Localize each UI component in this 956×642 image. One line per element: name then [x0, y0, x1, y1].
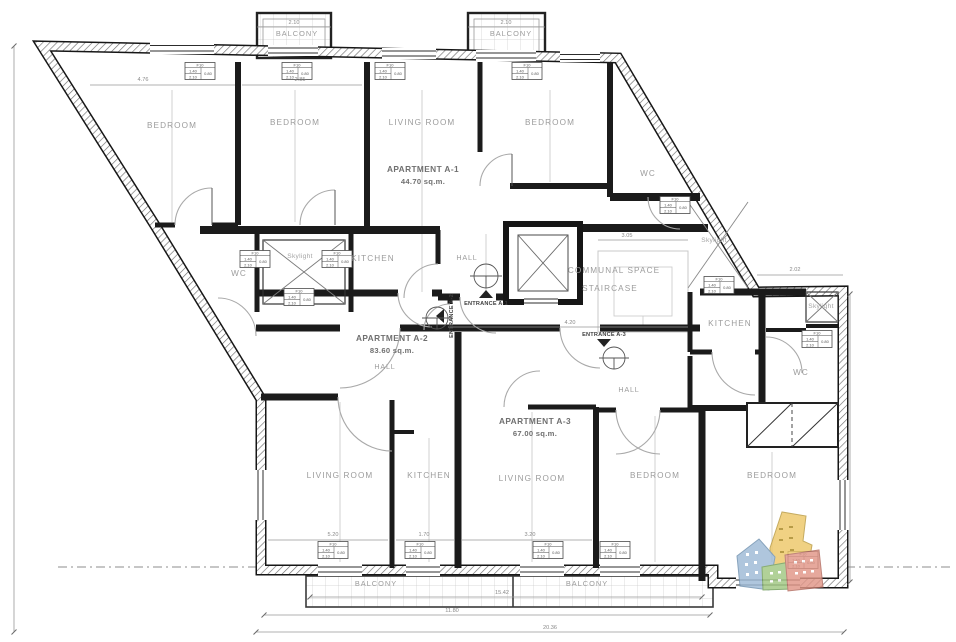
window-tag: F101.402.100.80 [704, 277, 734, 294]
window-tag: F101.402.100.80 [185, 63, 215, 80]
tag-cell: 0.80 [259, 259, 268, 264]
tag-cell: 2.10 [189, 75, 198, 80]
tag-header: F10 [296, 289, 304, 294]
tag-cell: 1.40 [244, 257, 253, 262]
tag-cell: 2.10 [288, 301, 297, 306]
tag-cell: 2.10 [604, 554, 613, 559]
dimension-label: 2.85 [295, 77, 306, 83]
window-tag: F101.402.100.80 [802, 331, 832, 348]
window-tag: F101.402.100.80 [660, 197, 690, 214]
window-tag: F101.402.100.80 [512, 63, 542, 80]
tag-cell: 0.80 [337, 550, 346, 555]
apartment-a-3-label: APARTMENT A-3 [499, 416, 571, 426]
dimension-label: 11.80 [445, 608, 459, 614]
bedroom-label: BEDROOM [747, 471, 797, 480]
tag-cell: 1.40 [516, 69, 525, 74]
dimension-label: 2.02 [790, 267, 801, 273]
tag-cell: 1.40 [806, 337, 815, 342]
floor-plan-page: F101.402.100.80F101.402.100.80F101.402.1… [0, 0, 956, 642]
bedroom-label: BEDROOM [630, 471, 680, 480]
tag-cell: 1.40 [664, 203, 673, 208]
dimension-label: 2.10 [501, 20, 512, 26]
dimension-label: 3.05 [622, 233, 633, 239]
hall-label: HALL [456, 253, 477, 262]
entrance-a-3-label: ENTRANCE A-3 [582, 332, 626, 338]
dimension-label: 20.36 [543, 625, 557, 631]
tag-cell: 2.10 [806, 343, 815, 348]
tag-cell: 0.80 [341, 259, 350, 264]
communal-space-label: COMMUNAL SPACE [568, 266, 660, 275]
entrance-a-1-label: ENTRANCE A-1 [464, 301, 508, 307]
wc-label: WC [793, 368, 809, 377]
window-tag: F101.402.100.80 [533, 542, 563, 559]
tag-header: F10 [524, 63, 532, 68]
window-tag: F101.402.100.80 [322, 251, 352, 268]
dimension-label: 3.20 [525, 532, 536, 538]
tag-cell: 0.80 [424, 550, 433, 555]
skylight-label: Skylight [287, 253, 313, 260]
wardrobe [747, 403, 838, 447]
dimension-label: 5.20 [328, 532, 339, 538]
hall-label: HALL [374, 362, 395, 371]
tag-cell: 0.80 [531, 71, 540, 76]
kitchen-label: KITCHEN [351, 254, 395, 263]
tag-cell: 2.10 [409, 554, 418, 559]
apartment-a-1-label: APARTMENT A-1 [387, 164, 459, 174]
tag-cell: 0.80 [821, 339, 830, 344]
tag-cell: 0.80 [301, 71, 310, 76]
balcony-label: BALCONY [566, 579, 608, 588]
tag-cell: 2.10 [664, 209, 673, 214]
window-tag: F101.402.100.80 [375, 63, 405, 80]
tag-cell: 0.80 [303, 297, 312, 302]
balcony-label: BALCONY [276, 29, 318, 38]
tag-cell: 2.10 [708, 289, 717, 294]
elevator-shaft [506, 224, 580, 306]
tag-cell: 1.40 [708, 283, 717, 288]
skylight-label: Skylight [701, 237, 727, 244]
tag-cell: 2.10 [537, 554, 546, 559]
tag-header: F10 [252, 251, 260, 256]
tag-cell: 0.80 [204, 71, 213, 76]
tag-header: F10 [612, 542, 620, 547]
dimension-label: 2.10 [289, 20, 300, 26]
dimension-label: 4.20 [565, 320, 576, 326]
apartment-a-2-label: APARTMENT A-2 [356, 333, 428, 343]
tag-cell: 2.10 [379, 75, 388, 80]
tag-header: F10 [672, 197, 680, 202]
skylight-top-right [688, 202, 748, 288]
wc-label: WC [231, 269, 247, 278]
tag-cell: 1.40 [189, 69, 198, 74]
tag-header: F10 [545, 542, 553, 547]
kitchen-label: KITCHEN [708, 319, 752, 328]
apartment-area-label: 67.00 sq.m. [513, 429, 557, 438]
tag-cell: 1.40 [409, 548, 418, 553]
apartment-area-label: 83.60 sq.m. [370, 346, 414, 355]
company-logo [737, 512, 823, 591]
tag-header: F10 [294, 63, 302, 68]
living-room-label: LIVING ROOM [389, 118, 456, 127]
living-room-label: LIVING ROOM [499, 474, 566, 483]
tag-header: F10 [417, 542, 425, 547]
tag-cell: 0.80 [723, 285, 732, 290]
tag-cell: 2.10 [516, 75, 525, 80]
balcony-label: BALCONY [355, 579, 397, 588]
tag-cell: 0.80 [619, 550, 628, 555]
tag-cell: 1.40 [604, 548, 613, 553]
tag-header: F10 [334, 251, 342, 256]
tag-cell: 2.10 [326, 263, 335, 268]
window-tags: F101.402.100.80F101.402.100.80F101.402.1… [185, 63, 832, 569]
bedroom-label: BEDROOM [525, 118, 575, 127]
kitchen-label: KITCHEN [407, 471, 451, 480]
entrance-a3-marker [597, 339, 611, 347]
tag-header: F10 [387, 63, 395, 68]
living-room-label: LIVING ROOM [307, 471, 374, 480]
tag-cell: 2.10 [244, 263, 253, 268]
dimension-label: 1.70 [419, 532, 430, 538]
apartment-area-label: 44.70 sq.m. [401, 177, 445, 186]
tag-cell: 1.40 [322, 548, 331, 553]
window-tag: F101.402.100.80 [284, 289, 314, 306]
bedroom-label: BEDROOM [147, 121, 197, 130]
floor-plan-drawing: F101.402.100.80F101.402.100.80F101.402.1… [0, 0, 956, 642]
tag-header: F10 [814, 331, 822, 336]
window-tag: F101.402.100.80 [405, 542, 435, 559]
staircase-label: STAIRCASE [582, 284, 638, 293]
tag-cell: 0.80 [552, 550, 561, 555]
windows [150, 42, 849, 589]
entrance-a-2-label: ENTRANCE A-2 [449, 294, 455, 338]
tag-cell: 0.80 [394, 71, 403, 76]
tag-header: F10 [716, 277, 724, 282]
tag-cell: 1.40 [286, 69, 295, 74]
tag-header: F10 [197, 63, 205, 68]
logo-red-building [785, 550, 823, 591]
entrance-a1-marker [479, 290, 493, 298]
dimension-label: 15.42 [495, 590, 509, 596]
tag-cell: 1.40 [288, 295, 297, 300]
tag-cell: 1.40 [537, 548, 546, 553]
tag-header: F10 [330, 542, 338, 547]
tag-cell: 0.80 [679, 205, 688, 210]
window-tag: F101.402.100.80 [600, 542, 630, 559]
window-tag: F101.402.100.80 [240, 251, 270, 268]
wc-label: WC [640, 169, 656, 178]
bedroom-label: BEDROOM [270, 118, 320, 127]
hall-label: HALL [618, 385, 639, 394]
tag-cell: 2.10 [286, 75, 295, 80]
tag-cell: 1.40 [326, 257, 335, 262]
balcony-label: BALCONY [490, 29, 532, 38]
skylight-label: Skylight [808, 303, 834, 310]
dimension-label: 4.76 [138, 77, 149, 83]
window-tag: F101.402.100.80 [318, 542, 348, 559]
tag-cell: 2.10 [322, 554, 331, 559]
tag-cell: 1.40 [379, 69, 388, 74]
